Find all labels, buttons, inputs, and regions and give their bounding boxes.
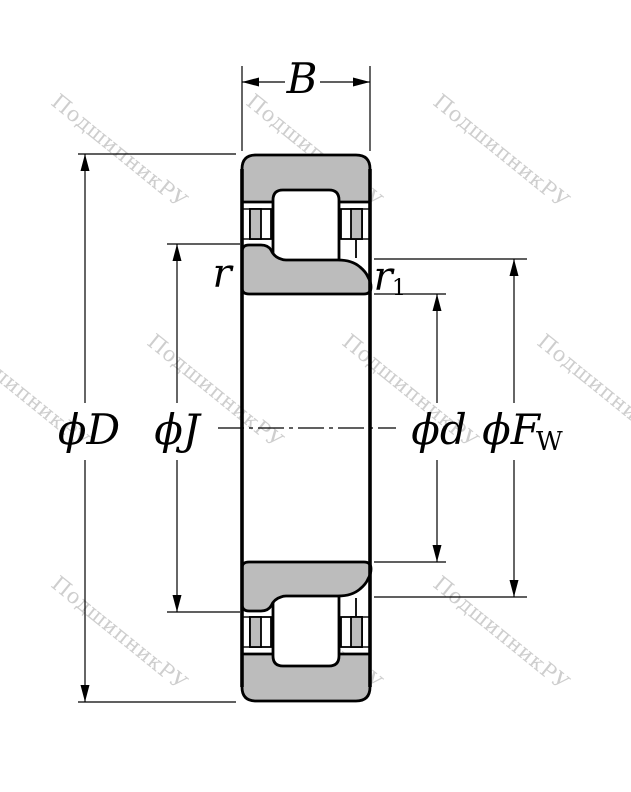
bearing-bottom-half	[242, 562, 371, 701]
label-raceway-diameter-subscript: W	[536, 427, 563, 457]
arrowhead-up	[81, 154, 90, 171]
label-chamfer-r: r	[212, 251, 234, 297]
label-width-B: B	[286, 54, 318, 103]
arrowhead-right	[353, 78, 370, 87]
arrowhead-down	[510, 580, 519, 597]
watermark-text: ПодшипникРУ	[429, 571, 574, 695]
arrowhead-down	[173, 595, 182, 612]
label-outer-diameter: ϕD	[58, 405, 120, 454]
label-rib-diameter: ϕJ	[154, 405, 202, 454]
arrowhead-up	[510, 259, 519, 276]
arrowhead-up	[433, 294, 442, 311]
label-raceway-diameter: ϕF	[482, 405, 542, 454]
label-chamfer-r1-subscript: 1	[392, 276, 406, 301]
arrowhead-down	[81, 685, 90, 702]
watermark-text: ПодшипникРУ	[47, 571, 192, 695]
watermark-text: ПодшипникРУ	[47, 89, 192, 213]
arrowhead-down	[433, 545, 442, 562]
watermark-text: ПодшипникРУ	[429, 89, 574, 213]
bearing-top-half	[242, 155, 371, 294]
arrowhead-up	[173, 244, 182, 261]
bearing-cross-section-diagram: ПодшипникРУ ПодшипникРУ ПодшипникРУ Подш…	[0, 0, 631, 792]
bearing-drawing-page: ПодшипникРУ ПодшипникРУ ПодшипникРУ Подш…	[0, 0, 631, 792]
label-bore-diameter: ϕd	[411, 405, 467, 454]
arrowhead-left	[242, 78, 259, 87]
